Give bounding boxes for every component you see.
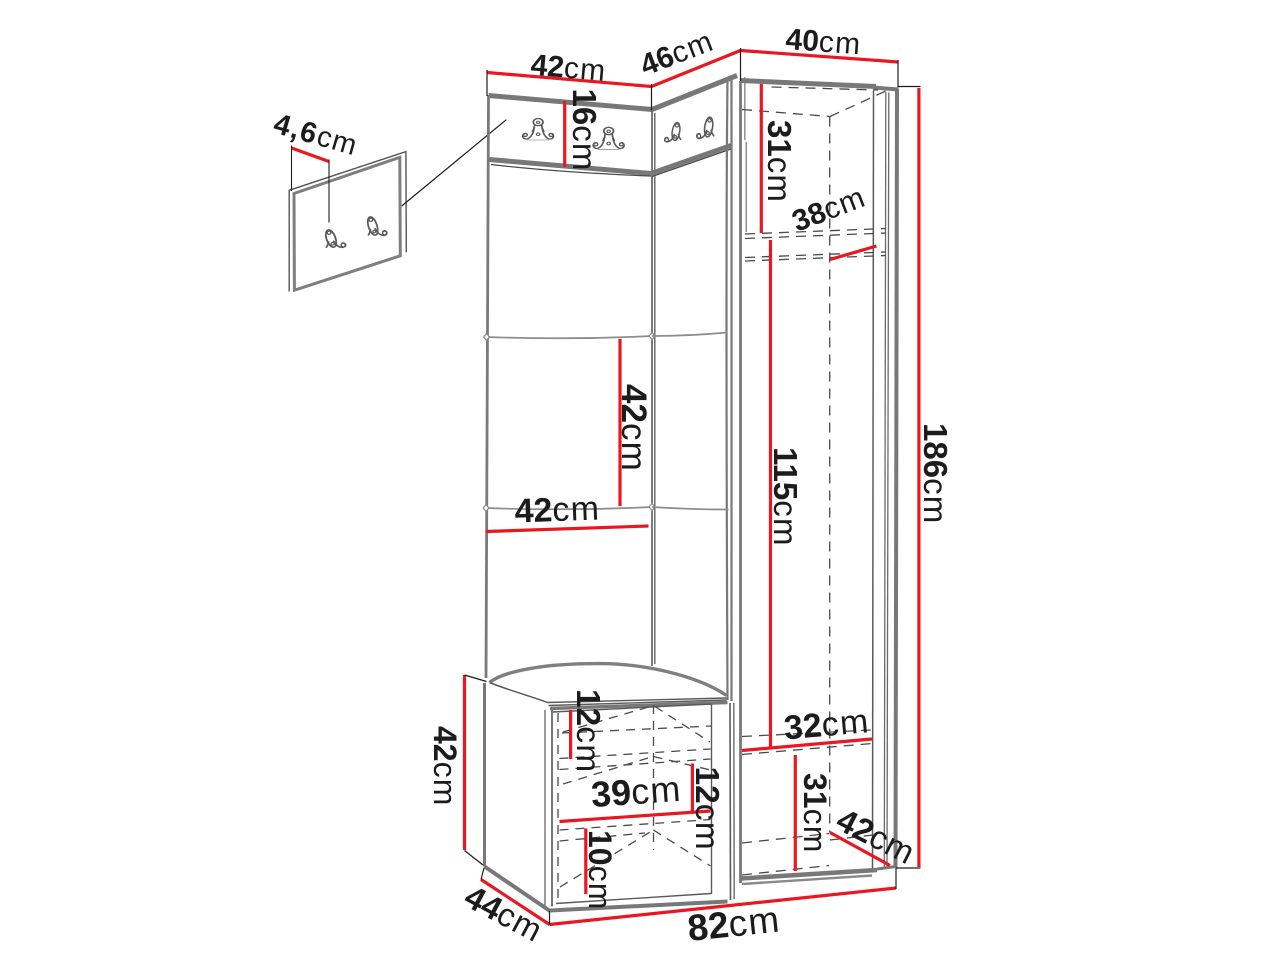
svg-text:40cm: 40cm: [785, 23, 863, 61]
svg-text:42cm: 42cm: [514, 490, 601, 531]
svg-text:42cm: 42cm: [529, 49, 607, 88]
svg-text:39cm: 39cm: [590, 768, 683, 815]
svg-text:31cm: 31cm: [797, 773, 833, 854]
svg-text:42cm: 42cm: [427, 726, 463, 807]
svg-text:12cm: 12cm: [569, 689, 606, 773]
svg-text:16cm: 16cm: [566, 89, 603, 172]
svg-text:12cm: 12cm: [688, 767, 725, 851]
svg-text:186cm: 186cm: [917, 423, 954, 524]
svg-text:10cm: 10cm: [582, 830, 618, 911]
svg-text:31cm: 31cm: [761, 120, 798, 203]
svg-text:32cm: 32cm: [782, 702, 871, 747]
svg-text:115cm: 115cm: [767, 447, 804, 547]
svg-text:42cm: 42cm: [614, 384, 653, 472]
